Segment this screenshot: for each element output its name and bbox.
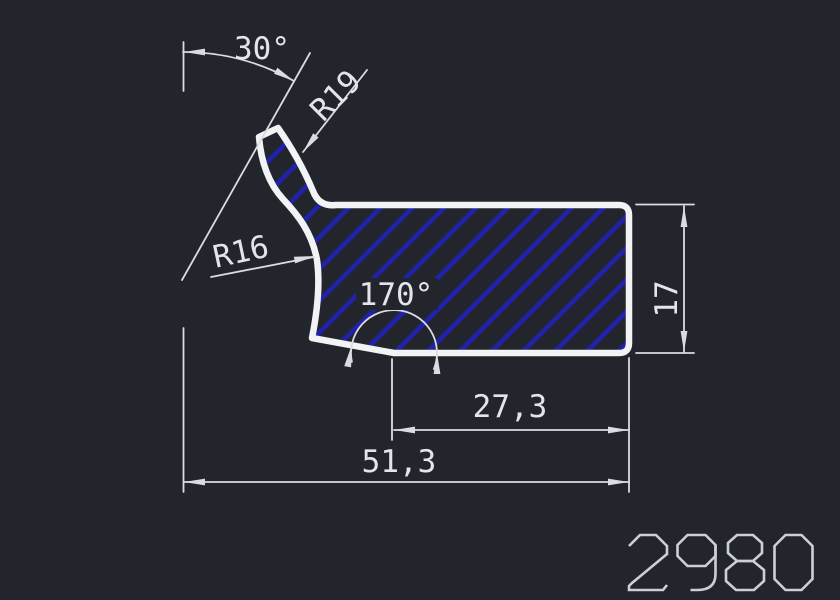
dim-30-arrow-right xyxy=(274,68,294,81)
dim-r19-arrow xyxy=(303,133,319,152)
cad-drawing-viewport: 30° R19 R16 170° 27,3 xyxy=(0,0,840,600)
part-number-digit-9 xyxy=(691,545,716,590)
part-profile xyxy=(259,128,629,353)
dim-17-arrow-top xyxy=(681,206,688,227)
part-number-digit-9 xyxy=(678,535,716,566)
part-number: 2980 xyxy=(628,532,813,590)
part-number-value: 2980 xyxy=(628,532,631,534)
dim-17-label: 17 xyxy=(649,280,685,317)
part-profile-outline xyxy=(259,128,629,353)
dim-radius-r16: R16 xyxy=(210,229,316,277)
dim-17-arrow-bottom xyxy=(681,331,688,352)
dim-r19-label: R19 xyxy=(303,63,368,128)
dim-r16-label: R16 xyxy=(210,229,272,276)
dim-170-label: 170° xyxy=(359,277,434,313)
dim-30-arrow-left xyxy=(184,49,205,56)
dim-170-arrow-left xyxy=(344,345,352,367)
dim-height-17: 17 xyxy=(636,205,694,354)
dim-27-label: 27,3 xyxy=(473,389,548,425)
dim-51-arrow-left xyxy=(184,479,205,486)
part-number-digit-0 xyxy=(775,535,813,590)
dim-radius-r19: R19 xyxy=(303,63,368,152)
part-number-digit-2 xyxy=(629,535,667,590)
technical-drawing-canvas: 30° R19 R16 170° 27,3 xyxy=(0,0,840,600)
part-number-digit-8 xyxy=(726,561,764,590)
dim-27-arrow-right xyxy=(608,427,629,434)
dim-30-label: 30° xyxy=(234,31,290,67)
part-number-digit-8 xyxy=(728,535,762,561)
dim-51-arrow-right xyxy=(608,479,629,486)
dim-51-label: 51,3 xyxy=(362,444,437,480)
dim-27-arrow-left xyxy=(394,427,415,434)
dim-r16-arrow xyxy=(294,256,316,263)
